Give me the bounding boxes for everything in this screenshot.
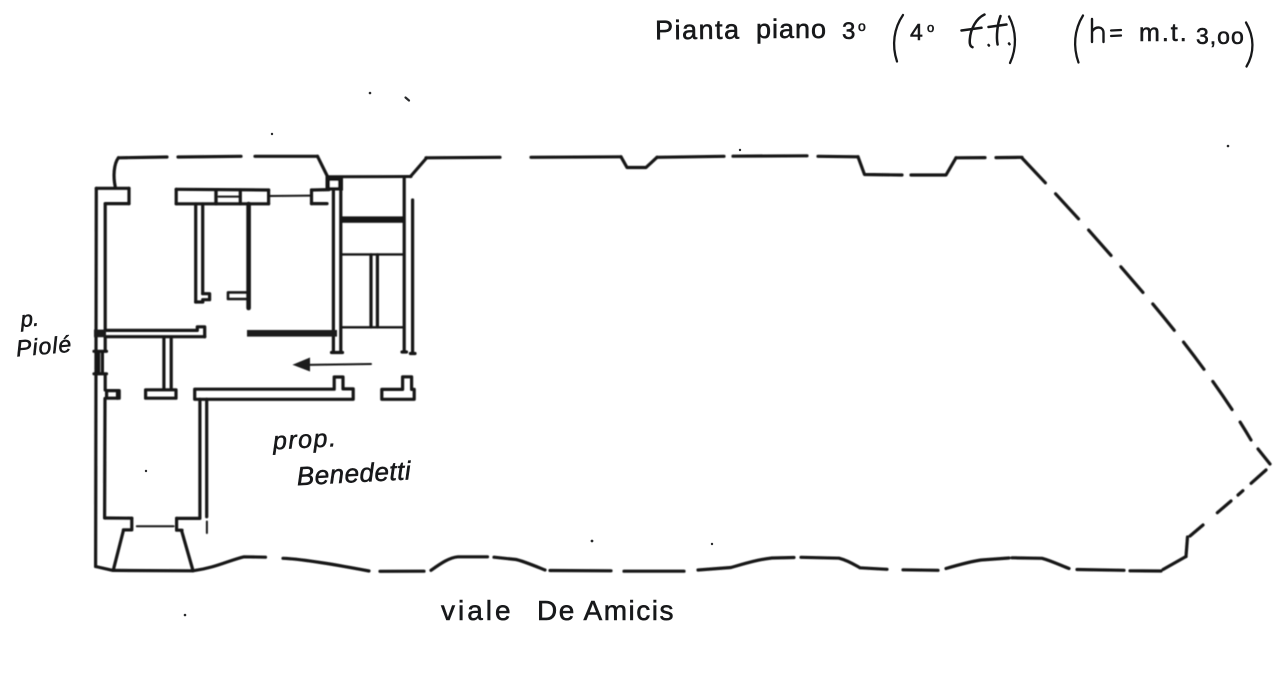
svg-text:Piolé: Piolé (15, 331, 73, 362)
svg-text:o: o (927, 20, 934, 35)
svg-text:3,oo: 3,oo (1196, 23, 1245, 49)
svg-text:prop.: prop. (271, 424, 338, 455)
svg-text:3: 3 (842, 18, 855, 45)
svg-text:viale: viale (441, 595, 514, 626)
svg-text:De Amicis: De Amicis (537, 595, 675, 626)
svg-text:m.t.: m.t. (1139, 19, 1189, 47)
svg-text:p.: p. (18, 306, 39, 333)
svg-text:Pianta: Pianta (655, 15, 741, 46)
svg-text:piano: piano (756, 14, 827, 44)
svg-text:4: 4 (910, 19, 923, 45)
svg-text:o: o (858, 18, 866, 34)
svg-text:Benedetti: Benedetti (296, 455, 413, 491)
